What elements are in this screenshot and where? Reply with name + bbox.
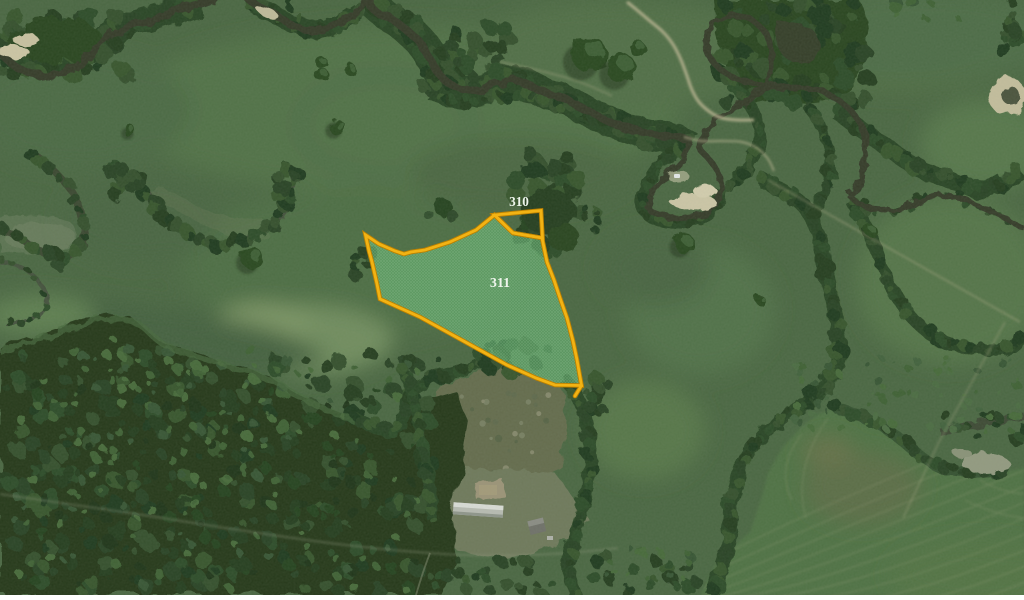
svg-text:311: 311 — [490, 276, 510, 291]
svg-text:310: 310 — [509, 194, 529, 209]
